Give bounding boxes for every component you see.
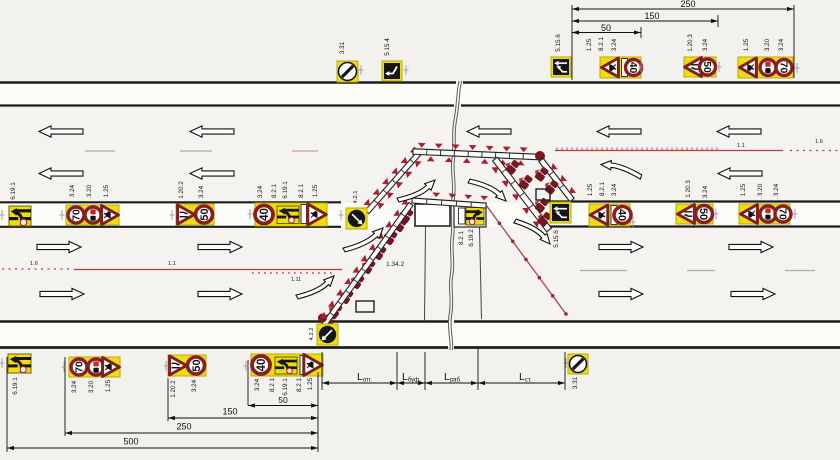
svg-text:50: 50 [601, 23, 611, 33]
svg-text:50: 50 [191, 359, 203, 371]
svg-text:50: 50 [701, 61, 712, 73]
svg-text:1.25: 1.25 [105, 379, 112, 392]
svg-text:6.19.2: 6.19.2 [468, 229, 475, 247]
svg-text:3.31: 3.31 [339, 41, 346, 54]
svg-text:50: 50 [278, 395, 288, 405]
svg-text:1.25: 1.25 [312, 184, 319, 197]
svg-text:250: 250 [176, 422, 191, 432]
svg-text:3.20: 3.20 [88, 380, 95, 393]
svg-text:40: 40 [259, 208, 271, 221]
svg-text:1.1: 1.1 [737, 143, 745, 149]
svg-text:150: 150 [644, 11, 659, 21]
svg-text:50: 50 [199, 208, 211, 220]
svg-text:3.24: 3.24 [257, 185, 264, 198]
svg-text:70: 70 [72, 209, 83, 221]
svg-text:150: 150 [222, 407, 237, 417]
svg-text:1.20.3: 1.20.3 [687, 34, 694, 52]
svg-text:1.25: 1.25 [586, 38, 593, 51]
svg-text:500: 500 [123, 437, 138, 447]
svg-text:1.34.2: 1.34.2 [386, 261, 404, 268]
svg-text:3.24: 3.24 [702, 38, 709, 51]
svg-text:3.24: 3.24 [778, 38, 785, 51]
svg-text:8.2.1: 8.2.1 [269, 378, 276, 393]
svg-text:8.2.1: 8.2.1 [298, 184, 305, 199]
svg-text:70: 70 [776, 208, 787, 220]
svg-text:1.25: 1.25 [740, 183, 747, 196]
svg-text:50: 50 [697, 208, 709, 220]
svg-text:3.24: 3.24 [69, 184, 76, 197]
svg-text:1.1: 1.1 [168, 261, 176, 267]
svg-text:250: 250 [680, 0, 695, 9]
svg-text:3.20: 3.20 [764, 38, 771, 51]
svg-text:3.24: 3.24 [773, 183, 780, 196]
svg-text:1.11: 1.11 [291, 277, 301, 283]
svg-text:70: 70 [777, 62, 788, 74]
svg-text:70: 70 [75, 361, 86, 373]
svg-text:8.2.1: 8.2.1 [458, 231, 465, 246]
svg-text:3.20: 3.20 [86, 184, 93, 197]
svg-text:1.6: 1.6 [30, 261, 38, 267]
svg-text:40: 40 [616, 209, 628, 221]
svg-text:3.24: 3.24 [702, 185, 709, 198]
svg-text:3.31: 3.31 [572, 376, 579, 389]
svg-text:4.2.1: 4.2.1 [353, 191, 359, 204]
svg-text:40: 40 [627, 62, 638, 74]
svg-text:5.15.6: 5.15.6 [553, 230, 560, 248]
svg-text:3.24: 3.24 [611, 183, 618, 196]
svg-text:8.2.1: 8.2.1 [271, 184, 278, 199]
svg-text:6.19.1: 6.19.1 [282, 378, 289, 396]
svg-text:6.19.1: 6.19.1 [282, 181, 289, 199]
svg-text:8.2.1: 8.2.1 [599, 182, 606, 197]
svg-text:3.24: 3.24 [254, 378, 261, 391]
svg-text:1.6: 1.6 [815, 139, 823, 145]
svg-text:6.19.1: 6.19.1 [10, 182, 17, 200]
svg-text:8.2.1: 8.2.1 [296, 378, 303, 393]
svg-text:40: 40 [256, 359, 268, 372]
svg-text:6.19.1: 6.19.1 [12, 377, 19, 395]
svg-text:3.24: 3.24 [198, 185, 205, 198]
svg-text:1.20.2: 1.20.2 [178, 181, 185, 199]
svg-text:1.25: 1.25 [743, 38, 750, 51]
svg-text:3.24: 3.24 [71, 380, 78, 393]
svg-text:5.15.4: 5.15.4 [384, 38, 391, 56]
svg-text:4.2.2: 4.2.2 [309, 328, 315, 341]
svg-text:1.25: 1.25 [307, 377, 314, 390]
svg-text:1.20.2: 1.20.2 [170, 380, 177, 398]
svg-text:1.25: 1.25 [587, 183, 594, 196]
svg-text:8.2.1: 8.2.1 [598, 37, 605, 52]
svg-text:1.25: 1.25 [103, 184, 110, 197]
svg-text:3.20: 3.20 [757, 183, 764, 196]
svg-text:5.15.6: 5.15.6 [555, 34, 562, 52]
svg-text:3.24: 3.24 [191, 379, 198, 392]
svg-text:3.24: 3.24 [611, 38, 618, 51]
svg-text:1.20.3: 1.20.3 [685, 180, 692, 198]
